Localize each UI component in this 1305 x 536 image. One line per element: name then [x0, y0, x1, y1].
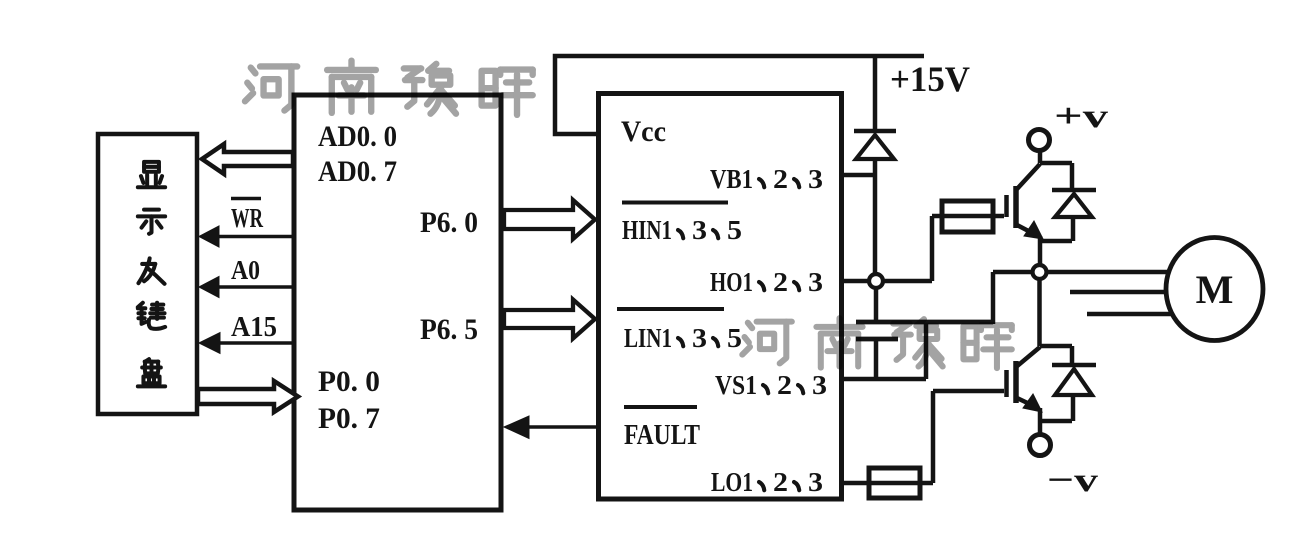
- svg-text:AD0. 7: AD0. 7: [318, 155, 397, 188]
- svg-text:VS1: VS1: [715, 370, 757, 400]
- svg-text:2: 2: [773, 467, 788, 497]
- svg-text:3: 3: [812, 370, 827, 400]
- svg-text:P6. 5: P6. 5: [420, 313, 478, 346]
- svg-text:M: M: [1196, 267, 1234, 312]
- svg-text:HIN1: HIN1: [622, 215, 672, 245]
- svg-text:LIN1: LIN1: [624, 323, 672, 353]
- svg-text:FAULT: FAULT: [624, 420, 700, 451]
- svg-text:HO1: HO1: [710, 267, 753, 297]
- svg-text:−v: −v: [1047, 462, 1098, 499]
- svg-text:2: 2: [773, 164, 788, 194]
- svg-text:2: 2: [773, 267, 788, 297]
- svg-text:+v: +v: [1054, 98, 1108, 135]
- svg-text:5: 5: [727, 323, 742, 353]
- svg-text:3: 3: [692, 323, 707, 353]
- svg-text:A0: A0: [231, 255, 260, 285]
- svg-text:P0. 7: P0. 7: [318, 402, 380, 435]
- svg-text:VB1: VB1: [710, 164, 753, 194]
- svg-text:LO1: LO1: [711, 467, 753, 497]
- svg-text:Vcc: Vcc: [621, 115, 666, 148]
- svg-text:A15: A15: [231, 312, 277, 343]
- svg-text:3: 3: [692, 215, 707, 245]
- svg-text:WR: WR: [231, 203, 263, 233]
- svg-text:AD0. 0: AD0. 0: [318, 120, 397, 153]
- svg-text:5: 5: [727, 215, 742, 245]
- svg-text:P6. 0: P6. 0: [420, 206, 478, 239]
- svg-text:3: 3: [808, 164, 823, 194]
- svg-text:+15V: +15V: [890, 59, 970, 99]
- svg-text:2: 2: [777, 370, 792, 400]
- svg-text:P0. 0: P0. 0: [318, 365, 380, 398]
- svg-text:3: 3: [808, 467, 823, 497]
- svg-text:3: 3: [808, 267, 823, 297]
